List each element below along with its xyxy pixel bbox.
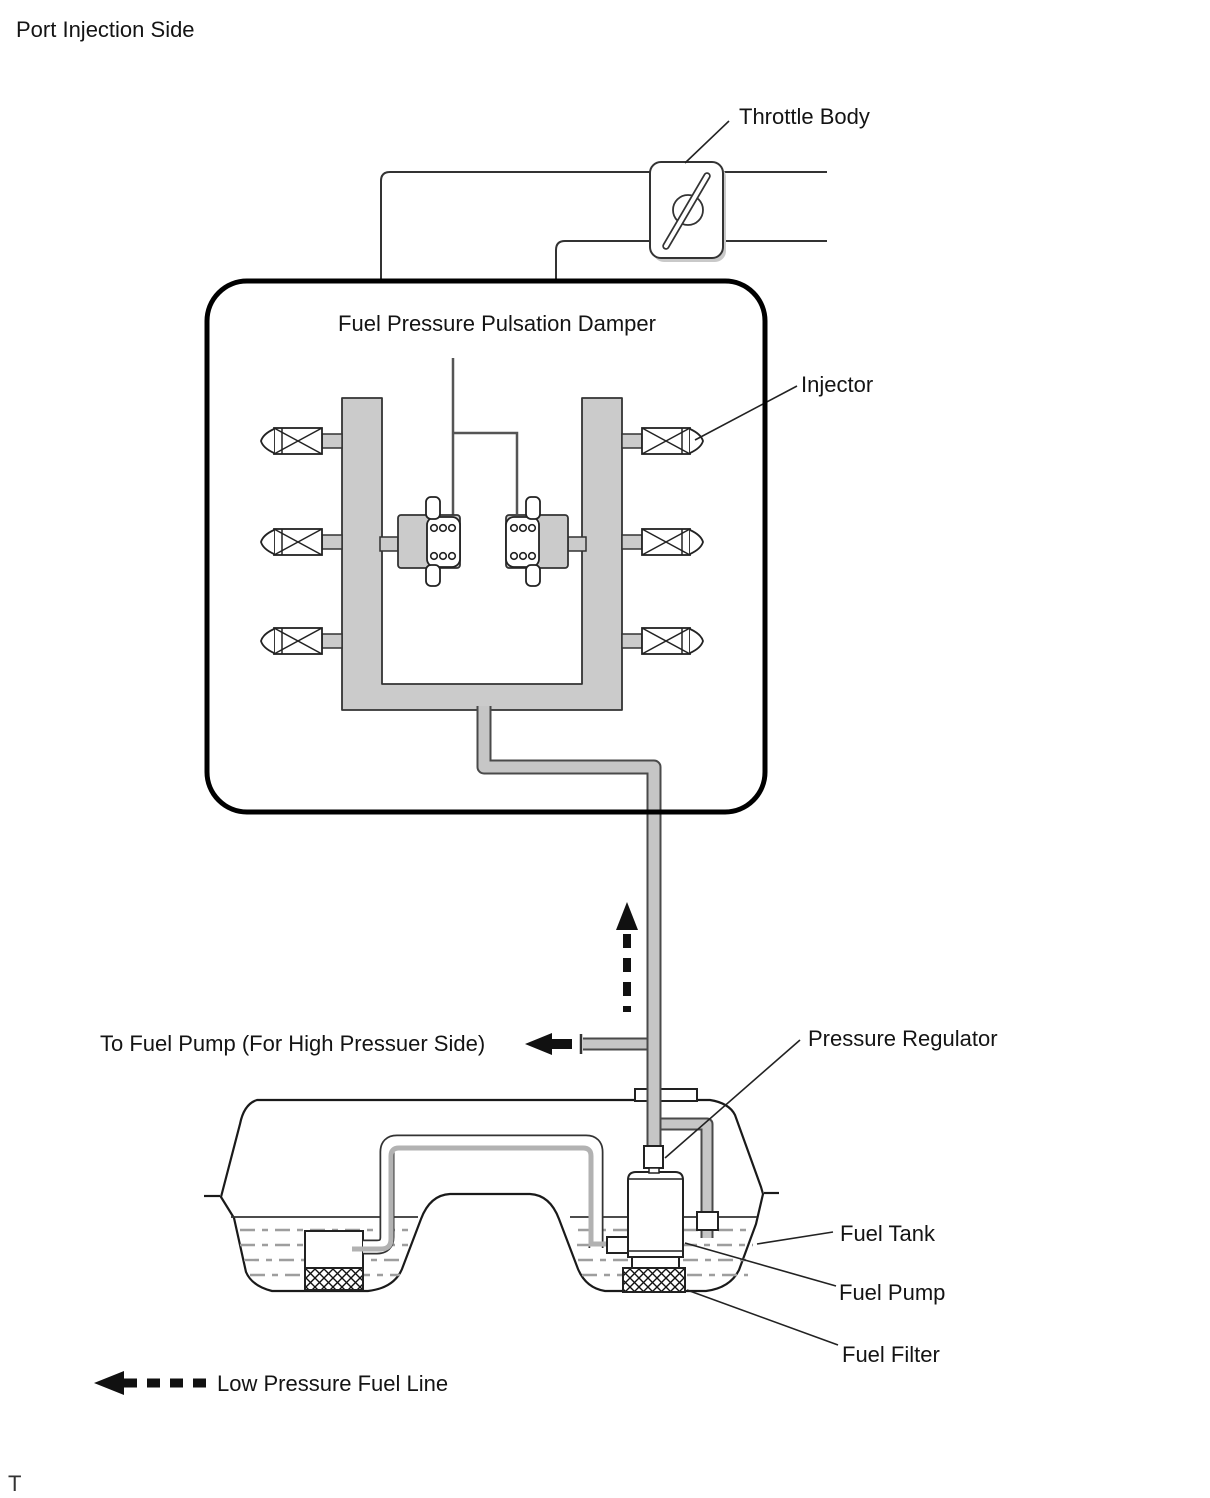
injector-icon [622, 529, 703, 555]
fuel-rail [342, 398, 622, 710]
pressure-regulator-icon [644, 1146, 663, 1173]
callout-line-fuel-pump [685, 1243, 836, 1286]
page-footnote: T [8, 1470, 21, 1497]
damper-box-title: Fuel Pressure Pulsation Damper [338, 310, 656, 337]
fuel-system-diagram [0, 0, 1210, 1498]
callout-line-fuel-tank [757, 1232, 833, 1244]
injector-icon [622, 628, 703, 654]
page-title: Port Injection Side [16, 16, 195, 43]
tank-flange [635, 1089, 697, 1101]
label-injector: Injector [801, 371, 873, 398]
throttle-body-icon [650, 162, 726, 262]
callout-line-throttle-body [685, 121, 729, 163]
intake-pipe-upper [381, 172, 827, 283]
label-fuel-filter: Fuel Filter [842, 1341, 940, 1368]
label-to-fuel-pump: To Fuel Pump (For High Pressuer Side) [100, 1030, 485, 1057]
callout-line-fuel-filter [687, 1290, 838, 1345]
fuel-filter-icon [623, 1268, 685, 1292]
crossover-fitting [607, 1237, 629, 1253]
intake-pipes [381, 172, 827, 283]
return-fitting [697, 1212, 718, 1230]
injector-icon [261, 628, 342, 654]
diagram-page: Port Injection Side Fuel Pressure Pulsat… [0, 0, 1210, 1498]
callout-line-injector [695, 386, 797, 440]
label-pressure-regulator: Pressure Regulator [808, 1025, 998, 1052]
pulsation-damper-icon [380, 497, 460, 586]
reservoir-strainer [305, 1268, 363, 1290]
injector-icon [261, 428, 342, 454]
fuel-pump-icon [628, 1172, 683, 1268]
label-throttle-body: Throttle Body [739, 103, 870, 130]
injector-icon [622, 428, 703, 454]
jet-pump-crossover-pipe [352, 1142, 609, 1249]
label-fuel-pump: Fuel Pump [839, 1279, 945, 1306]
legend-arrow-icon [94, 1371, 209, 1395]
callout-lines [665, 1040, 838, 1345]
label-fuel-tank: Fuel Tank [840, 1220, 935, 1247]
left-arrow-icon [525, 1033, 572, 1055]
damper-supply-line [453, 358, 517, 515]
flow-arrow-up-icon [616, 902, 638, 1012]
label-legend-low-pressure: Low Pressure Fuel Line [217, 1370, 448, 1397]
injector-icon [261, 529, 342, 555]
